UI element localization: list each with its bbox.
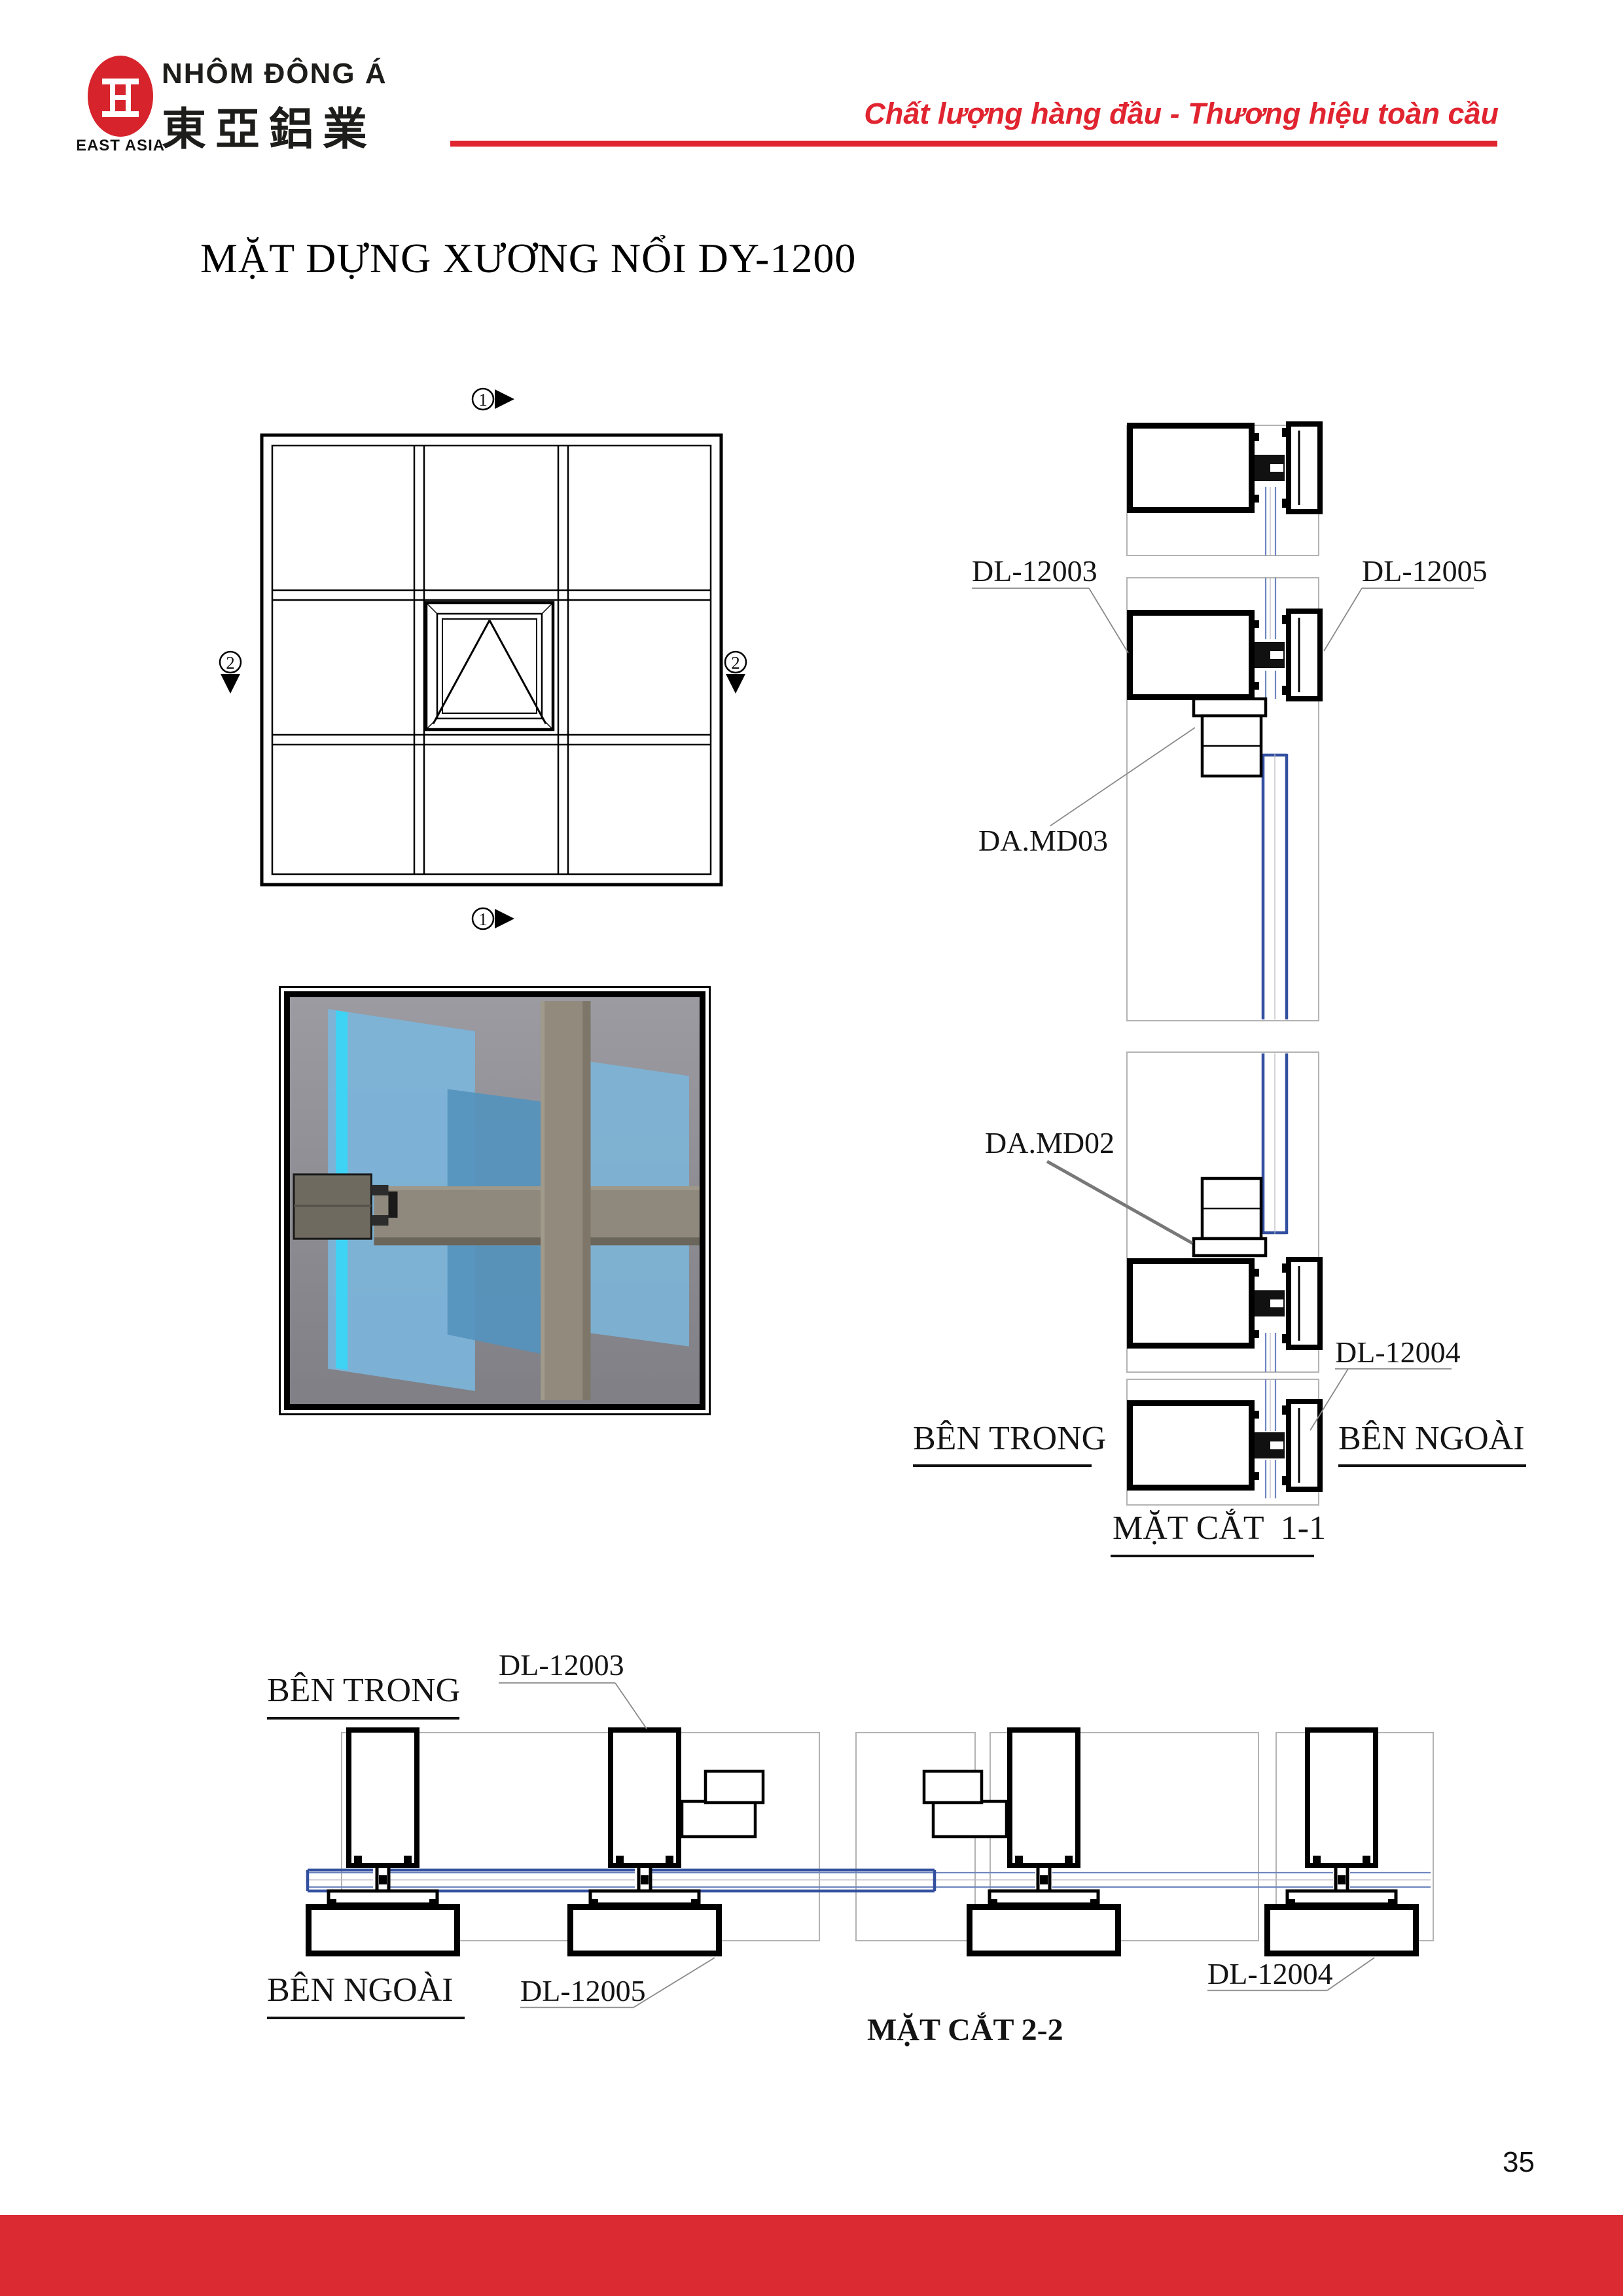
elevation-drawing: 1 1 2 2 — [196, 366, 785, 968]
mullion-plan-2 — [571, 1730, 719, 1954]
company-name-vi: NHÔM ĐÔNG Á — [162, 58, 387, 90]
mullion-bar — [541, 1001, 590, 1400]
label-damd03: DA.MD03 — [978, 824, 1108, 857]
section-marker-2-right: 2 — [725, 652, 746, 694]
label-dl12004: DL-12004 — [1335, 1335, 1461, 1369]
mullion-plan-3 — [970, 1730, 1118, 1954]
glass-lines — [1266, 487, 1275, 1498]
render-content — [290, 997, 700, 1404]
mullion-3d-render — [279, 986, 711, 1415]
section-marker-1-top: 1 — [473, 389, 514, 410]
section-2-2-title: MẶT CẮT 2-2 — [867, 2011, 1063, 2047]
page-number: 35 — [1503, 2146, 1535, 2179]
label-dl12005: DL-12005 — [1362, 554, 1488, 588]
elevation-grid — [262, 435, 721, 885]
mullion-plan-4 — [1268, 1730, 1416, 1954]
svg-text:1: 1 — [478, 390, 488, 410]
label-damd02: DA.MD02 — [985, 1126, 1115, 1159]
page-title: MẶT DỰNG XƯƠNG NỔI DY-1200 — [200, 234, 856, 283]
section-arrow-icon — [221, 674, 240, 694]
section-arrow-icon — [495, 909, 514, 928]
label-ben-trong-s1: BÊN TRONG — [913, 1419, 1106, 1457]
header-rule — [450, 141, 1497, 147]
vent-profile-right-of-2 — [682, 1771, 763, 1837]
transom-bar — [374, 1186, 700, 1245]
section-marker-2-left: 2 — [220, 652, 241, 694]
footer-red-bar — [0, 2215, 1623, 2296]
mullion-profile-top — [1130, 424, 1321, 512]
svg-text:2: 2 — [731, 653, 740, 673]
section-arrow-icon — [726, 674, 745, 694]
label-dl12005-s2: DL-12005 — [520, 1974, 646, 2007]
company-name-cn: 東亞鋁業 — [162, 93, 376, 158]
section-2-2-drawing: BÊN TRONG DL-12003 BÊN NGOÀI DL-12005 DL… — [249, 1597, 1453, 2068]
mullion-profile-bottom — [1130, 1402, 1321, 1489]
section-marker-1-bottom: 1 — [473, 908, 514, 929]
vent-profile-damd03 — [1194, 699, 1266, 776]
label-ben-ngoai-s2: BÊN NGOÀI — [267, 1971, 454, 2009]
label-ben-ngoai-s1: BÊN NGOÀI — [1338, 1419, 1525, 1457]
section-1-1-title: MẶT CẮT 1-1 — [1113, 1508, 1326, 1547]
svg-text:2: 2 — [226, 653, 235, 673]
svg-text:1: 1 — [478, 910, 488, 929]
mullion-plan-1 — [309, 1730, 457, 1954]
mullion-profile-upper — [1130, 611, 1321, 699]
section-arrow-icon — [495, 389, 514, 409]
section-1-1-drawing: DL-12003 DL-12005 DA.MD03 DA.MD02 DL-120… — [903, 393, 1558, 1570]
label-ben-trong-s2: BÊN TRONG — [267, 1671, 460, 1709]
vent-profile-damd02 — [1194, 1178, 1266, 1256]
label-dl12003: DL-12003 — [972, 554, 1097, 588]
awning-window — [426, 603, 553, 730]
vent-profile-left-of-3 — [924, 1771, 1007, 1837]
logo-subtext: EAST ASIA — [77, 137, 165, 154]
label-dl12003-s2: DL-12003 — [499, 1648, 624, 1682]
catalog-page: EAST ASIA NHÔM ĐÔNG Á 東亞鋁業 Chất lượng hà… — [0, 0, 1623, 2296]
header-tagline: Chất lượng hàng đầu - Thương hiệu toàn c… — [864, 97, 1499, 131]
label-dl12004-s2: DL-12004 — [1207, 1957, 1333, 1990]
glass-lines — [308, 1873, 1431, 1887]
mullion-profile-lower — [1130, 1260, 1321, 1347]
